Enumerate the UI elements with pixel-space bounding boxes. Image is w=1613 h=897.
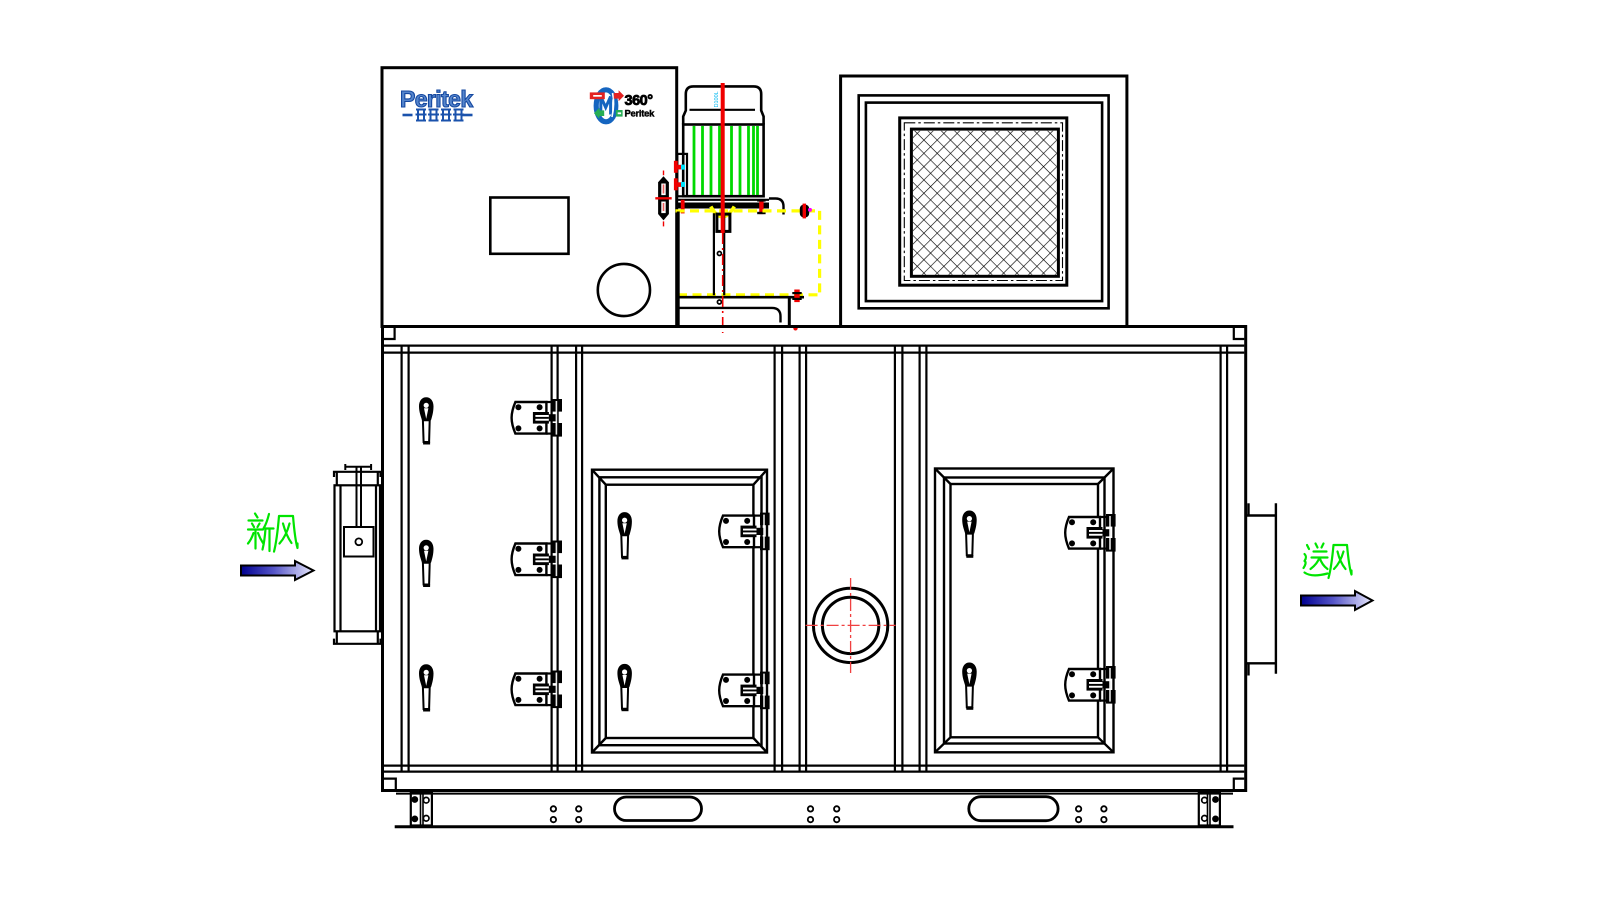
svg-text:Peritek: Peritek — [625, 109, 656, 120]
svg-text:360°: 360° — [625, 93, 654, 109]
svg-text:Peritek: Peritek — [400, 86, 473, 112]
svg-text:D100L: D100L — [714, 91, 720, 107]
